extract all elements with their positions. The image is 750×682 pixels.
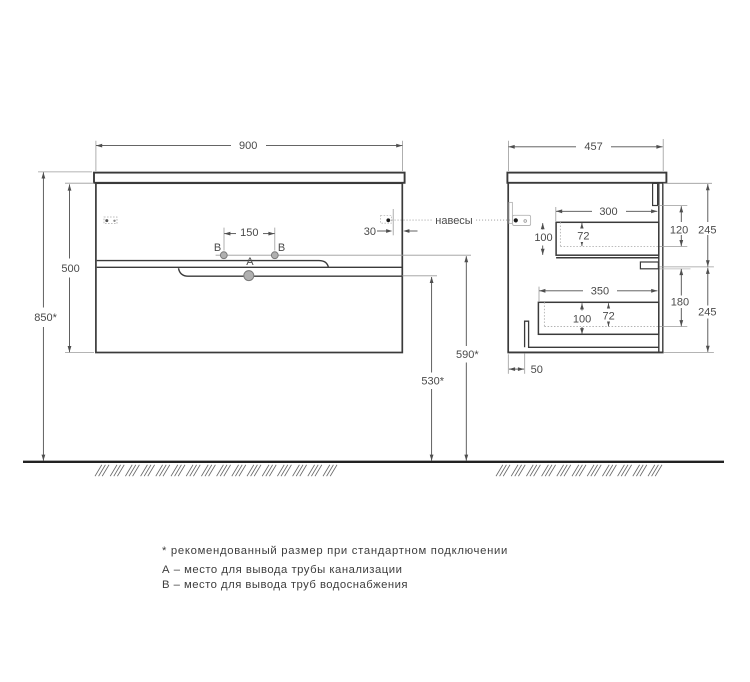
svg-text:B: B	[278, 242, 285, 254]
svg-text:150: 150	[240, 227, 258, 239]
svg-text:72: 72	[602, 310, 614, 322]
svg-text:245: 245	[698, 225, 716, 237]
svg-text:100: 100	[573, 314, 591, 326]
svg-text:30: 30	[364, 226, 376, 238]
svg-text:A: A	[246, 256, 254, 268]
svg-text:В – место для вывода труб водо: В – место для вывода труб водоснабжения	[162, 579, 408, 591]
svg-text:навесы: навесы	[435, 215, 473, 227]
svg-text:120: 120	[670, 225, 688, 237]
svg-text:А – место для вывода трубы кан: А – место для вывода трубы канализации	[162, 564, 402, 576]
svg-text:180: 180	[671, 296, 689, 308]
svg-text:300: 300	[599, 206, 617, 218]
svg-text:457: 457	[584, 141, 602, 153]
svg-text:900: 900	[239, 140, 257, 152]
svg-text:530*: 530*	[421, 376, 444, 388]
svg-text:72: 72	[577, 230, 589, 242]
svg-text:B: B	[214, 242, 221, 254]
svg-text:350: 350	[591, 285, 609, 297]
svg-text:* рекомендованный размер при с: * рекомендованный размер при стандартном…	[162, 545, 508, 557]
svg-text:500: 500	[61, 263, 79, 275]
svg-text:245: 245	[698, 307, 716, 319]
svg-text:850*: 850*	[34, 312, 57, 324]
svg-text:50: 50	[531, 364, 543, 376]
svg-text:100: 100	[534, 232, 552, 244]
svg-text:590*: 590*	[456, 349, 479, 361]
